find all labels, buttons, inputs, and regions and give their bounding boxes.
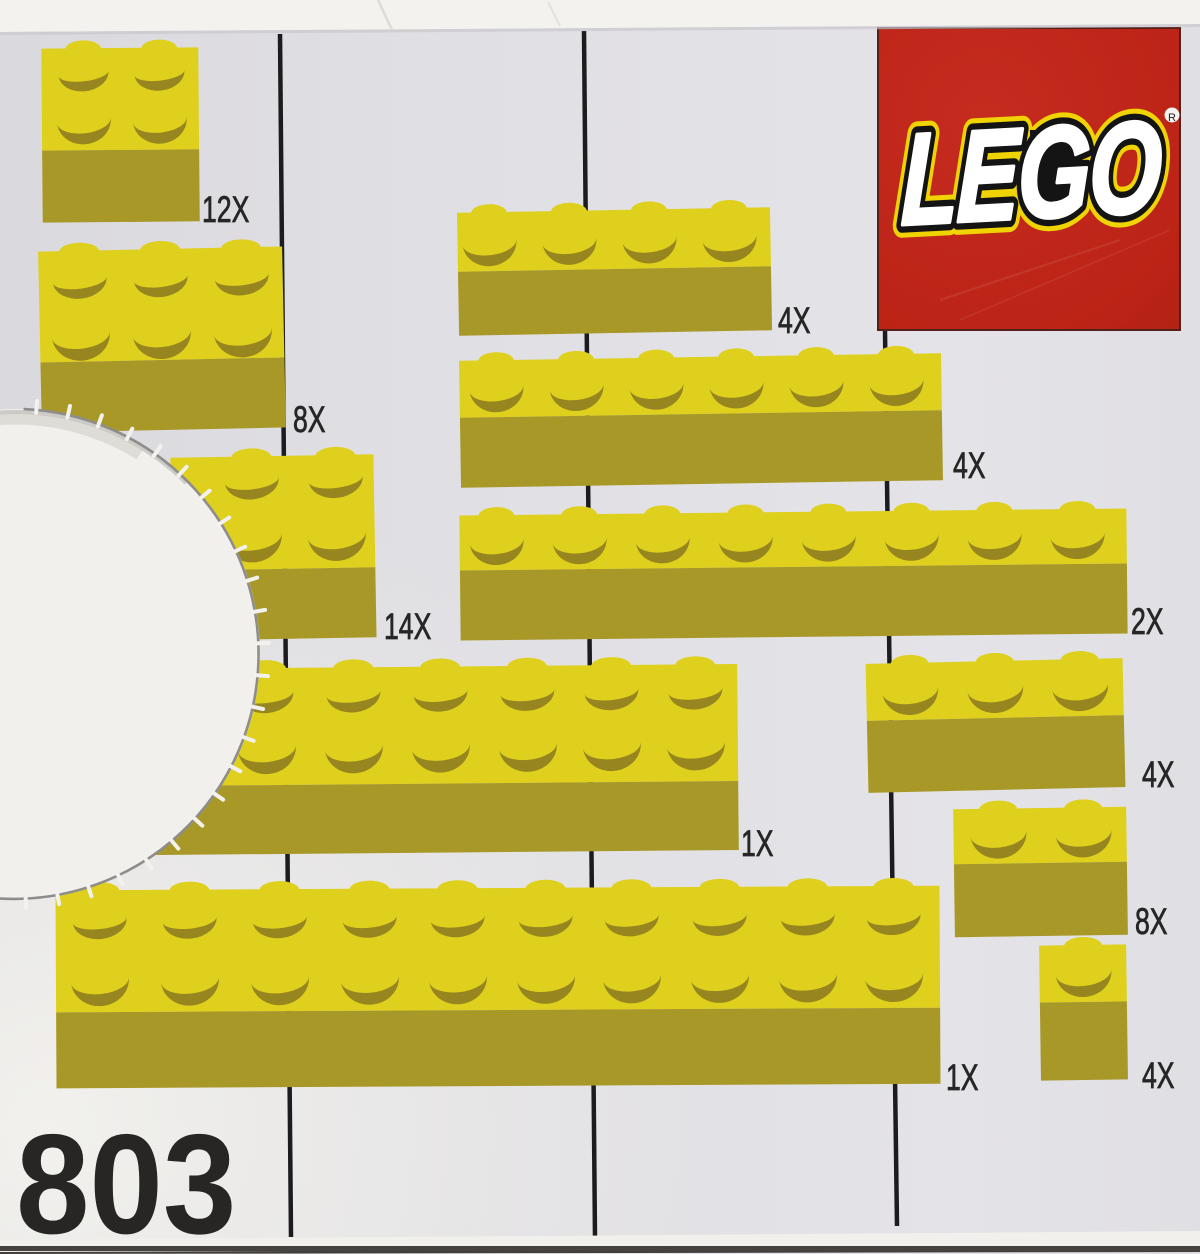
svg-text:1X: 1X xyxy=(741,823,774,864)
svg-text:4X: 4X xyxy=(1142,1055,1175,1096)
svg-text:4X: 4X xyxy=(778,300,811,341)
svg-text:R: R xyxy=(1168,112,1176,124)
svg-text:8X: 8X xyxy=(1135,901,1168,942)
svg-text:14X: 14X xyxy=(384,606,431,647)
svg-text:4X: 4X xyxy=(1142,754,1175,795)
svg-text:LEGO: LEGO xyxy=(900,94,1163,253)
svg-text:12X: 12X xyxy=(202,189,249,230)
svg-text:4X: 4X xyxy=(953,445,986,486)
svg-text:2X: 2X xyxy=(1131,601,1164,642)
svg-text:8X: 8X xyxy=(293,399,326,440)
svg-text:1X: 1X xyxy=(946,1057,979,1098)
svg-text:803: 803 xyxy=(16,1106,236,1254)
